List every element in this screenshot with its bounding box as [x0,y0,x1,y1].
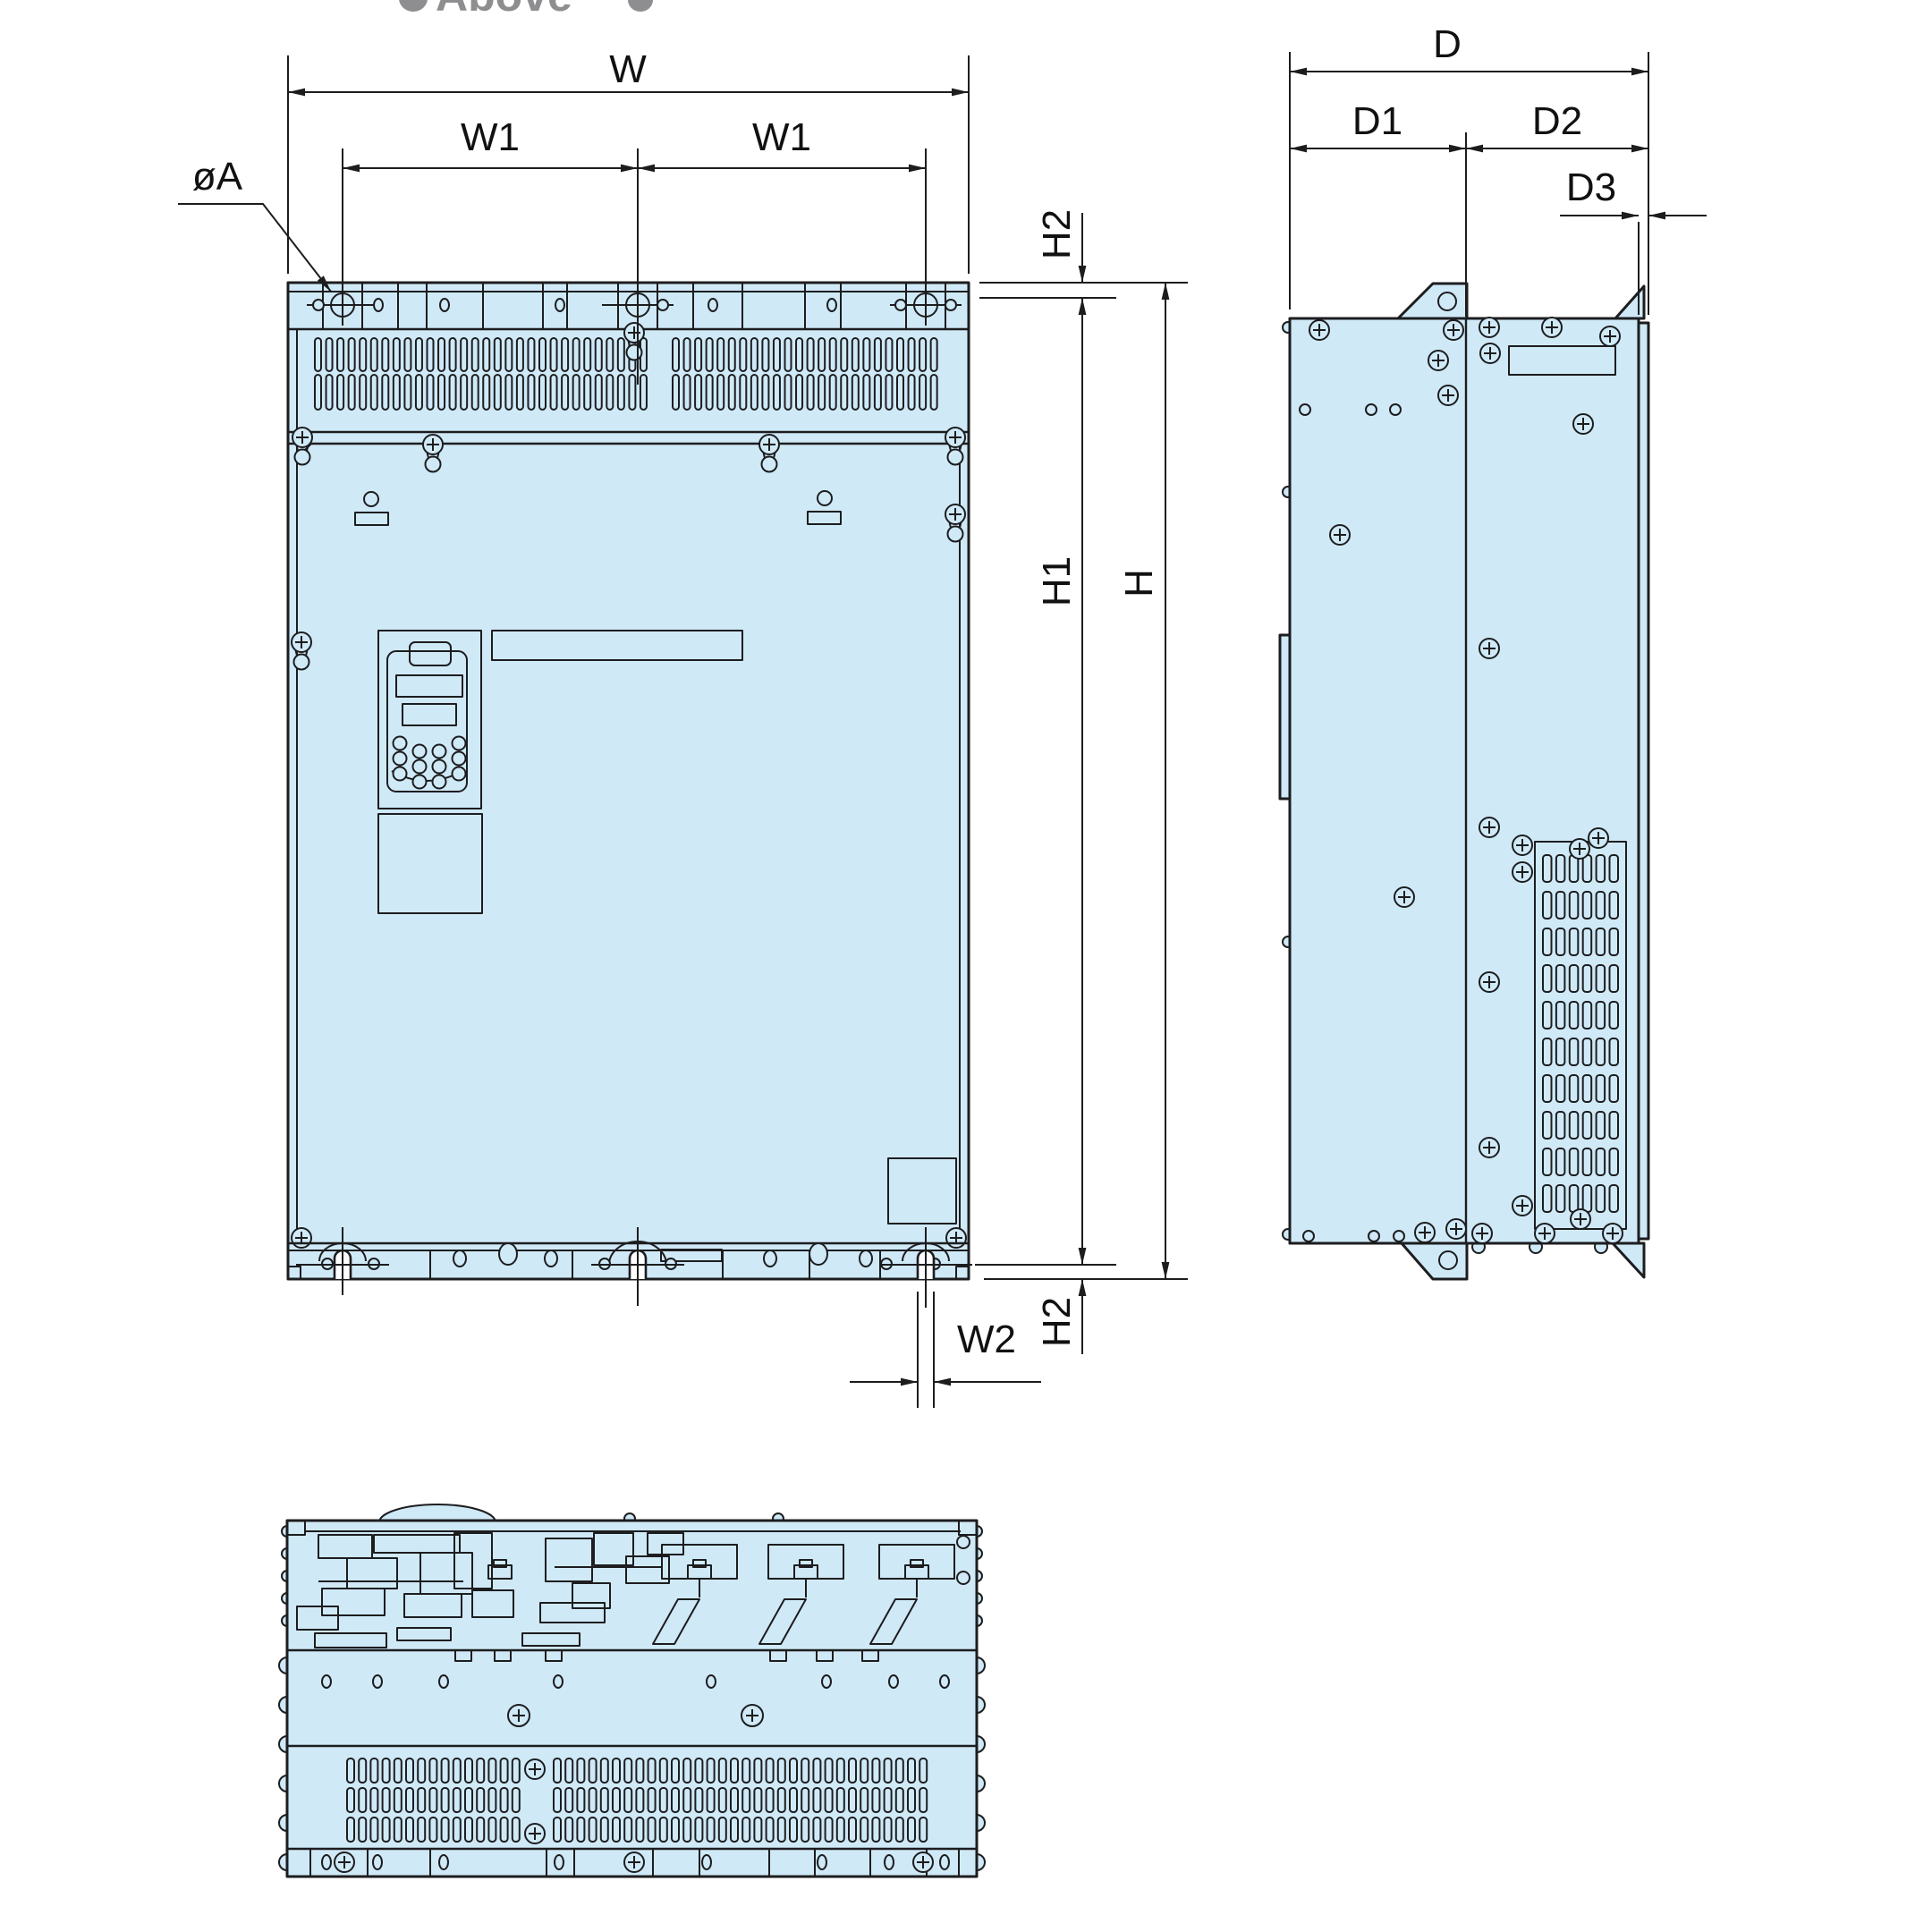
bottom-view [279,1504,985,1877]
side-top-tab-hole [1438,292,1456,310]
dim-label-d3: D3 [1566,165,1616,209]
dimension-drawing: Above [0,0,1932,1932]
dim-label-d1: D1 [1352,99,1402,143]
side-view [1280,284,1648,1279]
side-bottom-tab-hole [1439,1251,1457,1269]
dim-label-h2-top: H2 [1035,209,1079,259]
dim-label-w1-right: W1 [752,115,811,159]
dim-label-h: H [1117,569,1161,597]
side-left-flange [1280,635,1290,799]
clipped-glyph-blob [399,0,428,12]
dim-label-h2-bottom: H2 [1035,1297,1079,1347]
side-body [1290,318,1639,1243]
front-view [288,283,972,1308]
dim-label-w1-left: W1 [461,115,520,159]
hole-dia-leader [178,204,331,292]
dim-label-d: D [1433,22,1462,66]
side-rear-flange [1639,323,1648,1239]
drawing-canvas: Above [0,0,1932,1932]
side-top-rear-tab [1615,286,1644,318]
dim-label-h1: H1 [1035,556,1079,606]
clipped-heading: Above [399,0,653,21]
clipped-glyph-blob2 [628,0,653,12]
clipped-heading-text: Above [436,0,572,21]
dim-label-hole-dia: øA [192,155,243,199]
dim-label-d2: D2 [1532,99,1582,143]
bottom-vent-slots [347,1758,927,1843]
dim-label-w2: W2 [957,1318,1016,1361]
side-bottom-rear-tab [1613,1243,1644,1277]
dim-label-w: W [609,47,647,91]
